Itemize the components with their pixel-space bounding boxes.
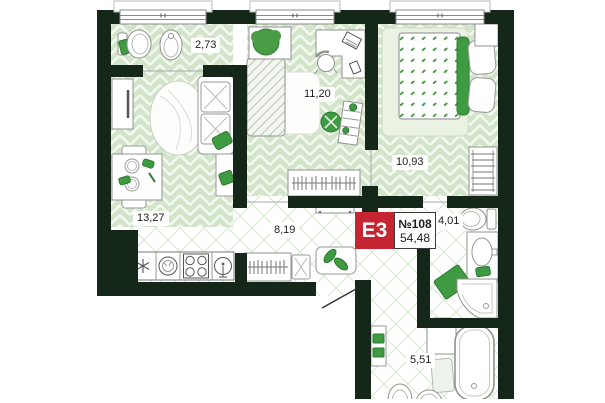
- shoe-bench: [316, 247, 356, 274]
- wall-shelf: [371, 326, 386, 366]
- windows: [114, 1, 490, 24]
- plant-shelf: [249, 27, 291, 59]
- kitchen-counter: [130, 252, 234, 280]
- bathtub: [455, 326, 494, 400]
- room-area-label-bathroom-top: 2,73: [191, 38, 220, 53]
- room-area-label-hallway: 8,19: [270, 223, 299, 238]
- room-area-label-bedroom-right: 10,93: [392, 155, 428, 170]
- window: [250, 1, 340, 24]
- single-bed: [247, 58, 285, 136]
- unit-info-box: №108 54,48: [394, 212, 436, 249]
- pillow: [468, 77, 497, 113]
- dining-set: [112, 146, 162, 208]
- wardrobe: [288, 170, 360, 196]
- unit-number: №108: [398, 217, 431, 231]
- hall-wardrobe: [245, 253, 291, 281]
- room-area-label-bedroom-middle: 11,20: [300, 87, 335, 102]
- unit-type-label: E3: [355, 212, 394, 249]
- floor-plan: 2,73 11,20 10,93 13,27 8,19 4,01 5,51 E3…: [0, 0, 605, 403]
- green-box: [373, 334, 384, 343]
- bed-runner: [457, 37, 469, 115]
- double-bed: [399, 33, 460, 119]
- unit-total-area: 54,48: [400, 231, 430, 245]
- room-area-label-bathroom-bottom: 5,51: [406, 353, 435, 368]
- cabinet: [427, 325, 456, 354]
- radiator-rack: [469, 147, 497, 195]
- sofa: [198, 76, 234, 154]
- window: [390, 1, 490, 24]
- unit-badge: E3 №108 54,48: [355, 212, 436, 249]
- window: [114, 1, 212, 24]
- storage-box: [292, 255, 310, 279]
- room-area-label-bathroom-right: 4,01: [434, 214, 463, 229]
- green-box: [373, 348, 384, 357]
- vanity-sink: [467, 232, 498, 282]
- soap-tray: [476, 266, 491, 277]
- room-area-label-living-kitchen: 13,27: [133, 211, 169, 226]
- floor-plan-drawing: [0, 0, 605, 403]
- outside-area: [97, 296, 355, 399]
- tv-stand: [112, 79, 133, 129]
- nightstand: [475, 24, 498, 46]
